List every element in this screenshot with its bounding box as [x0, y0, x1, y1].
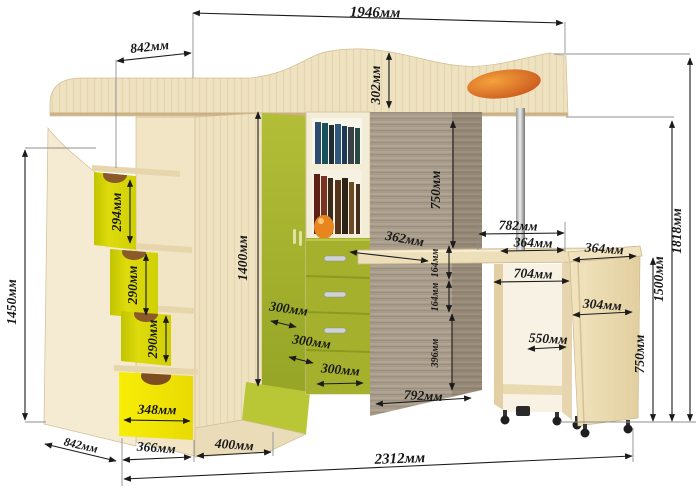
dim-label-top-left-depth: 842мм	[129, 37, 169, 56]
dim-label-bottom-366: 366мм	[135, 439, 176, 457]
furniture	[44, 49, 642, 457]
dim-label-underbed-height: 750мм	[428, 171, 443, 210]
caster-wheel	[581, 424, 590, 438]
drawer-handle	[324, 292, 346, 297]
wardrobe-door-handle	[299, 231, 302, 246]
furniture-dimension-diagram: 1946мм 842мм 302мм 1450мм 294мм 290мм 29…	[0, 0, 700, 502]
dim-label-desk-782: 782мм	[499, 217, 538, 233]
dim-line-bottom-366	[123, 457, 191, 460]
pullout-desk-left-wall	[494, 264, 503, 410]
caster-wheel	[501, 410, 510, 425]
dim-label-bed-height: 1500мм	[651, 256, 666, 302]
dim-label-cabinet-304: 304мм	[581, 296, 622, 314]
dim-label-cabinet-height: 750мм	[632, 335, 647, 374]
dim-label-drawer-front-2: 164мм	[430, 283, 441, 312]
dim-label-lower-panel: 396мм	[430, 339, 441, 369]
dim-label-desk-550: 550мм	[528, 330, 567, 347]
dim-label-step1: 294мм	[109, 193, 124, 233]
dim-label-wardrobe-height: 1400мм	[235, 235, 250, 281]
wardrobe-door-handle	[293, 229, 296, 244]
dim-label-headboard: 302мм	[368, 66, 383, 106]
caster-block	[516, 406, 530, 416]
dim-label-total-width: 2312мм	[373, 450, 425, 468]
dim-line-top-left-depth	[117, 53, 191, 61]
dim-label-top-width: 1946мм	[350, 5, 401, 22]
caster-wheel	[553, 412, 562, 426]
orange-jar	[314, 215, 334, 239]
dim-label-left-height: 1450мм	[4, 279, 19, 325]
dim-label-step2: 290мм	[125, 266, 140, 306]
dim-label-step3: 290мм	[145, 320, 160, 360]
wardrobe-door	[262, 113, 308, 393]
dim-label-desk-704: 704мм	[514, 265, 553, 281]
dim-label-back-width: 792мм	[403, 387, 442, 404]
dim-label-total-height: 1818мм	[669, 208, 684, 254]
dim-label-bottom-400: 400мм	[213, 436, 254, 454]
dim-label-cabinet-top: 364мм	[583, 240, 624, 258]
drawer-handle	[324, 328, 346, 333]
drawer-handle	[324, 256, 346, 261]
pullout-desk	[494, 262, 582, 430]
dim-label-drawer-front-1: 164мм	[430, 249, 441, 278]
diagram-canvas: 1946мм 842мм 302мм 1450мм 294мм 290мм 29…	[0, 0, 700, 502]
rolling-cabinet	[568, 246, 642, 438]
dim-label-desk-364: 364мм	[513, 234, 553, 250]
dim-label-stair-drawer: 348мм	[137, 402, 177, 418]
